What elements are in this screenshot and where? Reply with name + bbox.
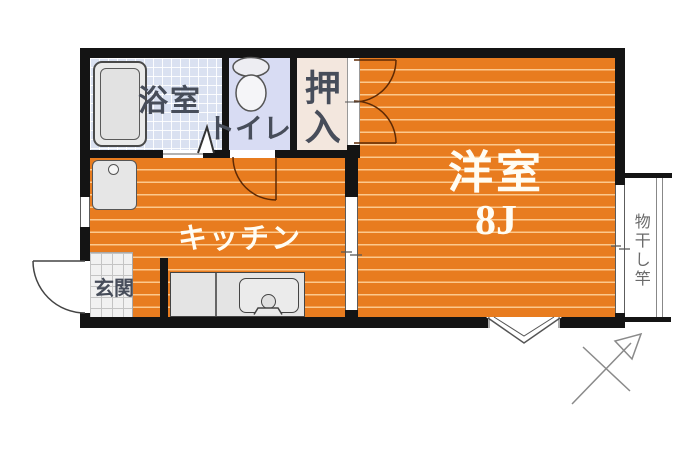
bay-window [486,317,562,345]
kitchen-room-sliding-door [345,197,358,310]
counter-divider [215,273,217,316]
bathtub-inner [100,68,140,140]
sink-drain [261,294,276,309]
balcony-railing-line-2 [662,178,663,317]
kitchen-window [80,197,90,227]
wall-kitchen-room-upper [345,158,358,197]
wall-bathroom-bottom [90,150,163,158]
bathroom-label: 浴室 [138,86,202,118]
balcony-rail-top [625,173,672,178]
wall-right-upper [615,48,625,185]
wall-left-upper [80,48,90,197]
balcony-railing-line-1 [656,178,657,317]
north-arrow-compass [572,334,641,404]
balcony-sliding-window [615,185,625,313]
wall-top [80,48,625,58]
closet-label: 押入 [300,66,338,150]
closet-door-panels [347,58,360,145]
laundry-pole-label: 物干し竿 [631,192,648,310]
wall-toilet-closet [290,58,297,150]
wall-right-corner [615,313,625,328]
wall-bottom-left [80,317,488,328]
wall-left-mid [80,227,90,261]
wall-entrance-stub [160,258,168,317]
wall-closet-stub [347,145,360,158]
wall-toilet-bottom-left [203,150,230,158]
wall-kitchen-room-lower [345,310,358,318]
kitchen-label: キッチン [178,224,302,254]
kitchen-counter [170,272,305,317]
entrance-label: 玄関 [94,279,134,300]
western-room-label: 洋室 [430,150,562,197]
entrance-door-swing [33,261,85,313]
balcony-rail-bottom [625,317,671,322]
washing-machine-pan [92,160,137,210]
washing-machine-drain [108,164,119,175]
western-room-size-label: 8J [430,199,562,243]
floor-plan: 浴室 トイレ 押入 洋室 8J キッチン 玄関 物干し竿 [0,0,700,453]
wall-closet-bottom [275,150,358,158]
toilet-label: トイレ [207,115,291,144]
